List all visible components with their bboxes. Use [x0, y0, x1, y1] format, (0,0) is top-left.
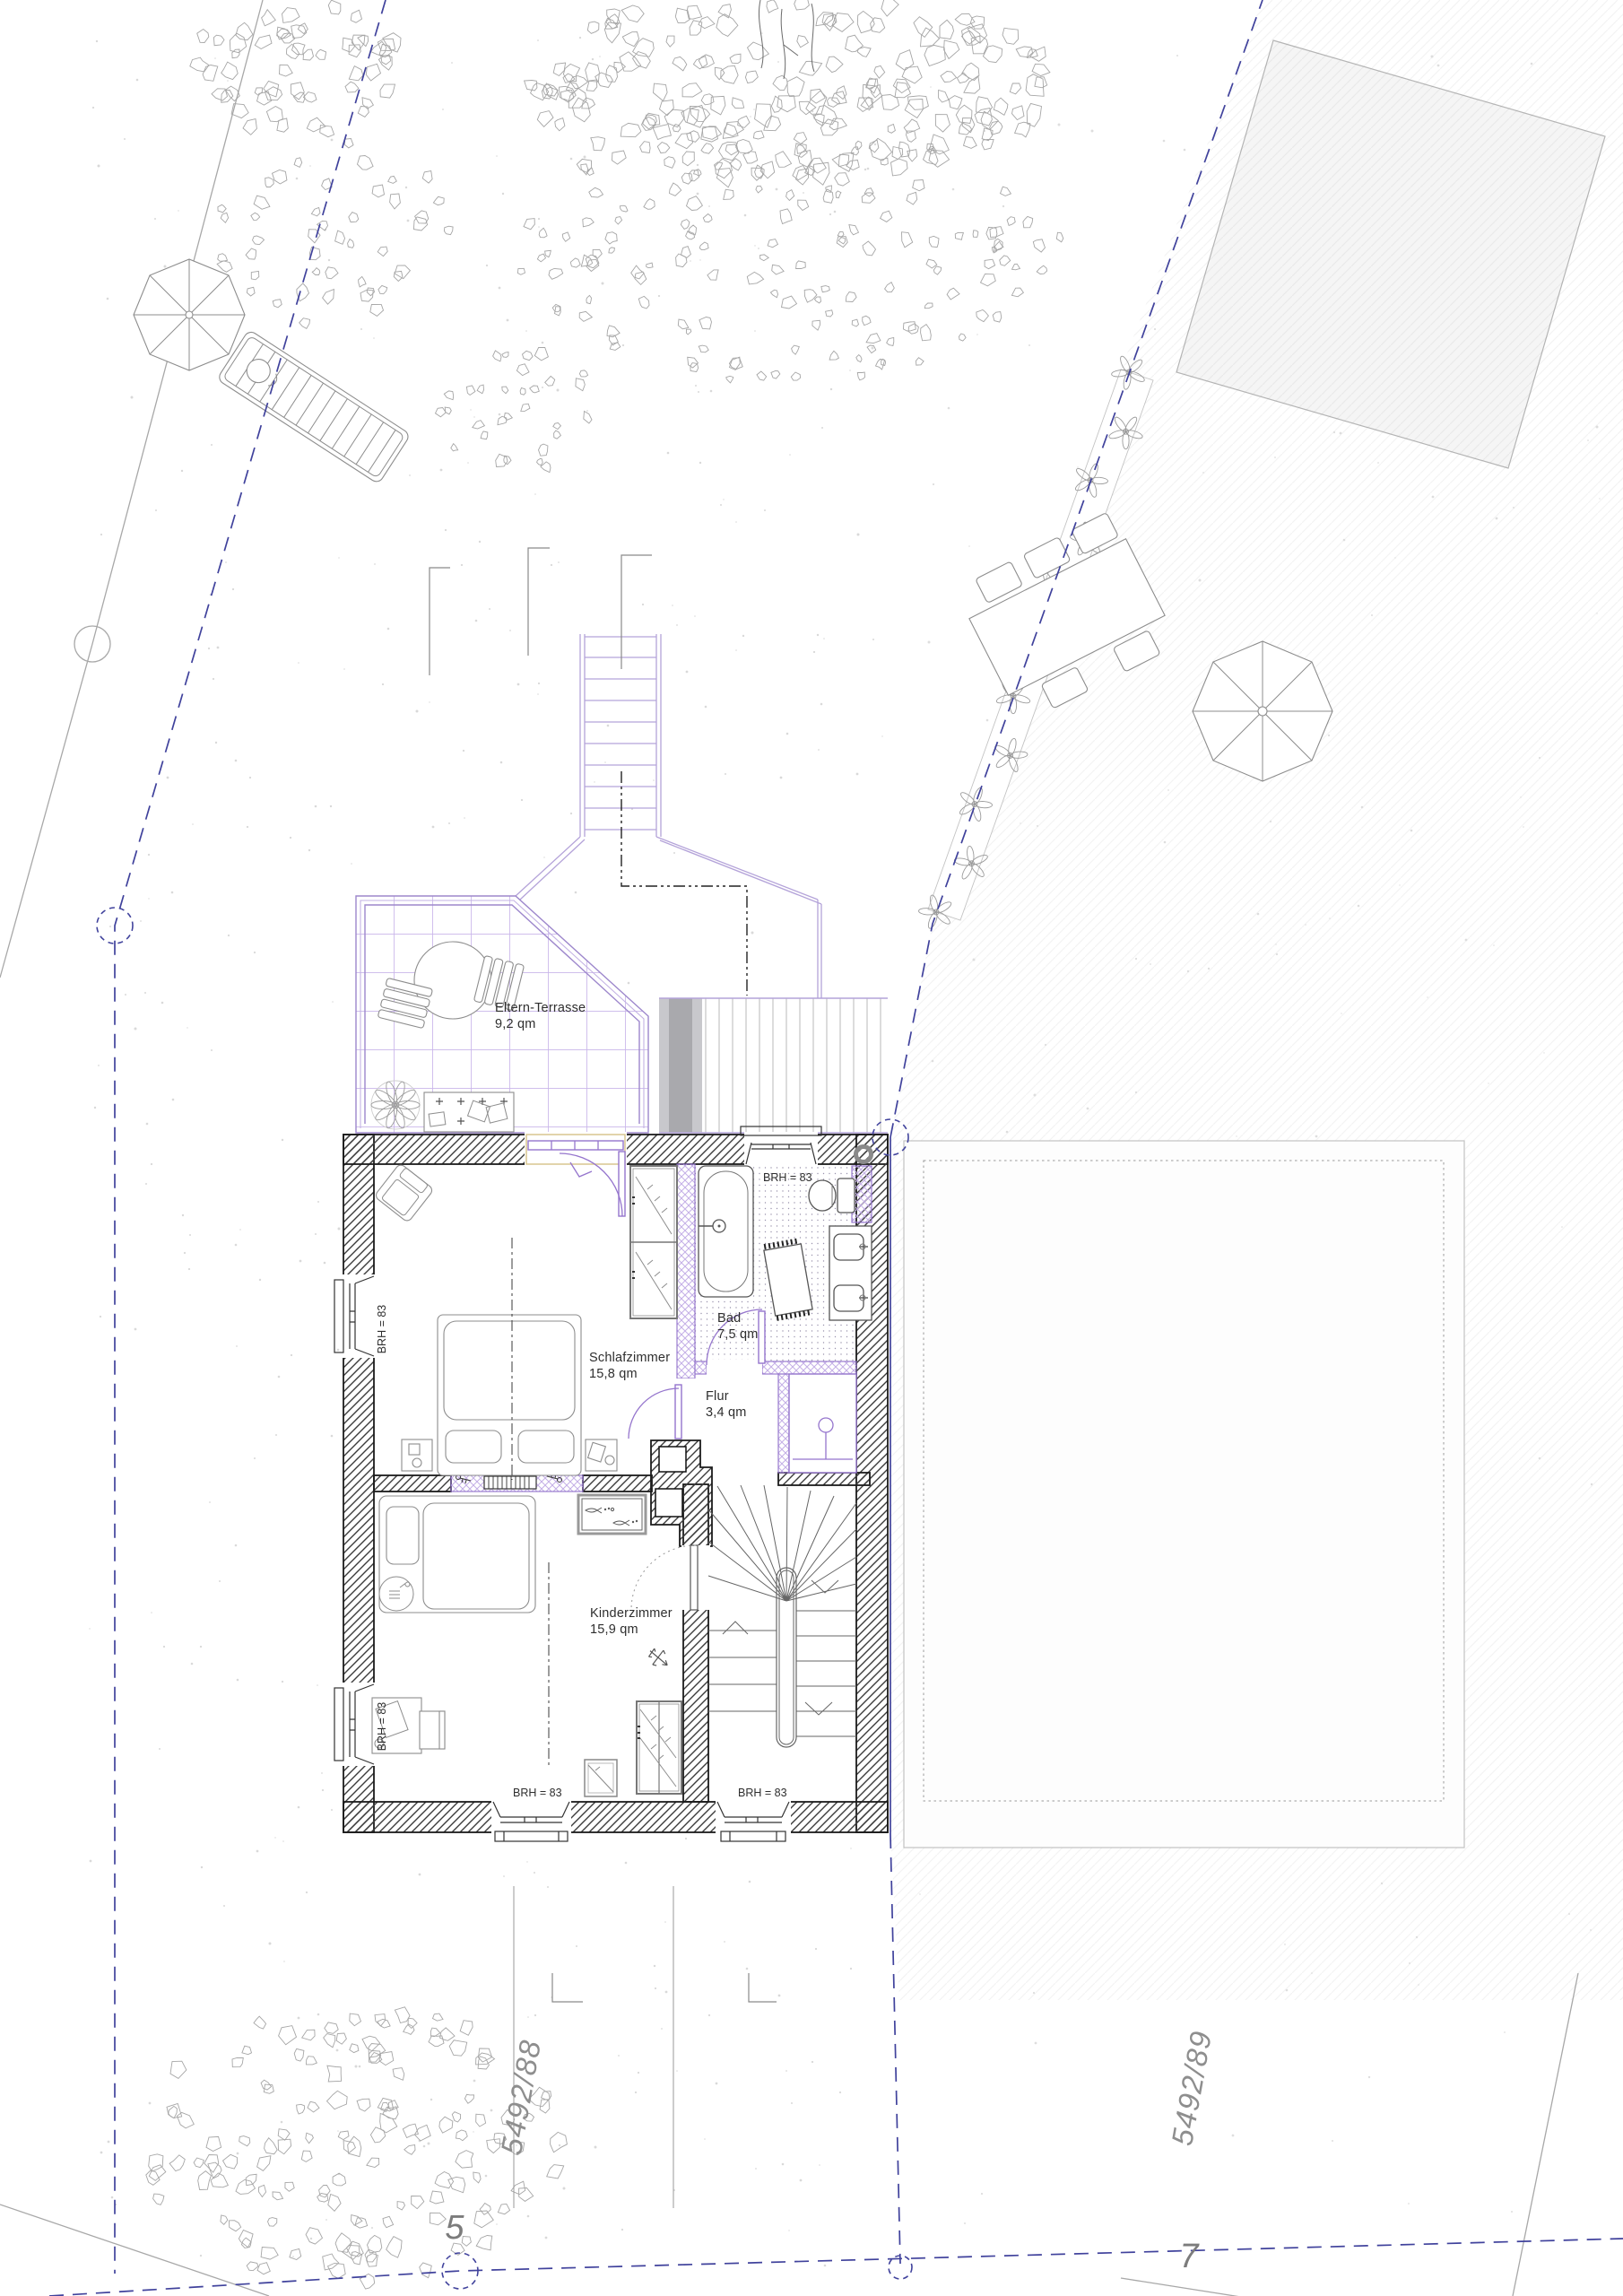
- sill-height-label: BRH = 83: [376, 1305, 388, 1354]
- sill-height-label: BRH = 83: [763, 1171, 812, 1184]
- house-number: 7: [1179, 2238, 1200, 2275]
- wardrobe: [637, 1701, 681, 1794]
- parasol-icon: [1193, 641, 1332, 781]
- vanity-basins: [829, 1226, 872, 1320]
- window: [334, 1274, 376, 1358]
- sill-height-label: BRH = 83: [376, 1702, 388, 1752]
- single-bed: [379, 1496, 535, 1613]
- sill-height-label: BRH = 83: [513, 1787, 562, 1799]
- shower-closet: [789, 1374, 856, 1473]
- deck: [659, 998, 888, 1133]
- window: [491, 1799, 571, 1841]
- window: [716, 1799, 791, 1841]
- nightstand: [402, 1439, 432, 1471]
- window-leaf: [585, 1760, 617, 1796]
- house: [334, 1126, 888, 1841]
- site-floor-plan: Eltern-Terrasse9,2 qmSchlafzimmer15,8 qm…: [0, 0, 1623, 2296]
- building-footprint-dashed: [904, 1141, 1464, 1848]
- parasol-icon: [134, 259, 245, 370]
- window: [741, 1126, 821, 1167]
- window: [334, 1683, 376, 1766]
- house-number: 5: [445, 2209, 464, 2247]
- section-line: [621, 771, 747, 996]
- nightstand: [586, 1439, 617, 1471]
- radiator: [484, 1476, 536, 1489]
- aquarium: [578, 1495, 646, 1534]
- double-bed: [438, 1315, 581, 1475]
- bathtub: [699, 1166, 753, 1297]
- wardrobe: [630, 1166, 677, 1318]
- parcel-number: 5492/89: [1165, 2028, 1218, 2148]
- sun-lounger: [217, 329, 411, 483]
- parcel-number: 5492/88: [494, 2037, 547, 2157]
- terrace-bench: [424, 1092, 514, 1132]
- tree-branches: [759, 0, 814, 79]
- sill-height-label: BRH = 83: [738, 1787, 787, 1799]
